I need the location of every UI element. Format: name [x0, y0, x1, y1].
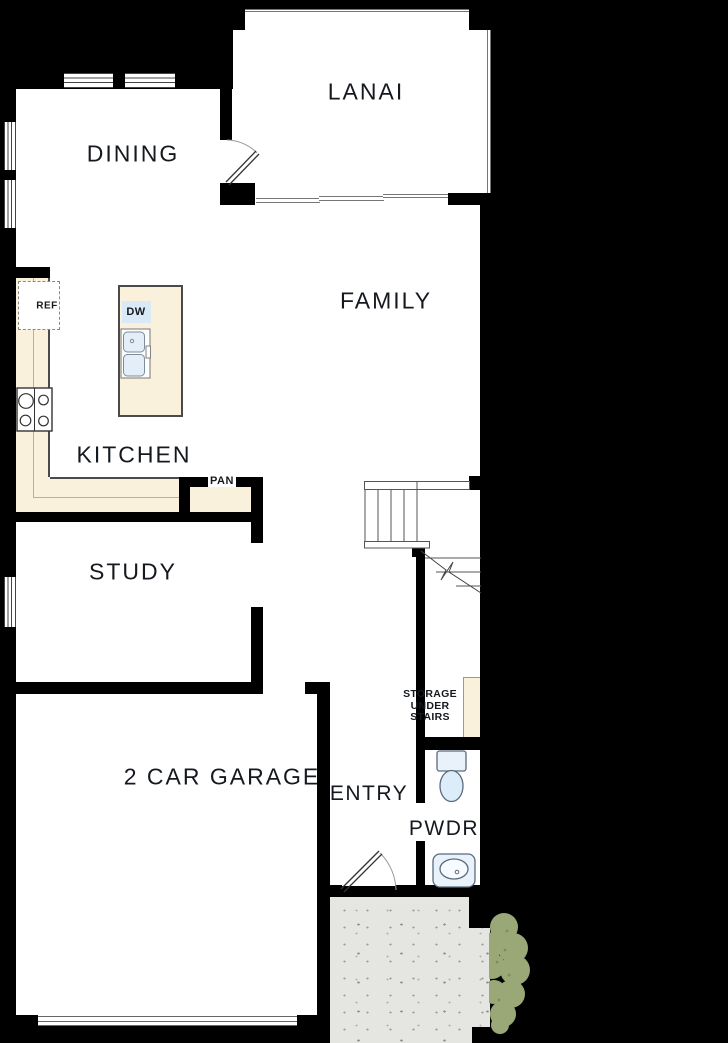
- counter-inner-line-h: [33, 497, 179, 498]
- garage-floor: [16, 694, 317, 1016]
- window-dining-top-2: [125, 73, 175, 88]
- floor-plan: LANAI DINING FAMILY KITCHEN STUDY 2 CAR …: [0, 0, 728, 1043]
- lanai-post-top-left: [220, 8, 245, 30]
- lanai-screen-right: [487, 30, 491, 193]
- wall-pantry-top-left: [190, 477, 208, 487]
- room-label-kitchen: KITCHEN: [77, 442, 192, 469]
- garage-door-panel-line: [38, 1021, 297, 1022]
- garage-door: [38, 1016, 297, 1026]
- window-dining-left-2: [4, 180, 16, 228]
- wall-study-bottom: [4, 682, 263, 694]
- storage-line-3: STAIRS: [403, 712, 457, 724]
- pantry-floor: [190, 487, 251, 512]
- window-dining-left-1: [4, 122, 16, 170]
- stair-newel-post: [412, 541, 425, 557]
- room-label-study: STUDY: [89, 559, 177, 586]
- sliding-door-panel-2: [319, 196, 384, 201]
- porch-concrete: [330, 897, 490, 1043]
- room-label-lanai: LANAI: [328, 79, 404, 106]
- sliding-door-panel-3: [383, 194, 448, 198]
- wall-garage-right: [317, 682, 330, 1016]
- wall-powder-left-lower: [416, 841, 425, 886]
- wall-dining-right: [220, 89, 232, 140]
- window-dining-top-1: [64, 73, 113, 88]
- porch-post-top: [469, 895, 492, 928]
- wall-powder-top: [416, 737, 482, 750]
- storage-line-1: STORAGE: [403, 689, 457, 701]
- room-label-entry: ENTRY: [330, 782, 408, 806]
- wall-kitchen-stub: [4, 267, 50, 278]
- label-storage-under-stairs: STORAGE UNDER STAIRS: [403, 689, 457, 724]
- lanai-post-bottom-right: [448, 193, 493, 205]
- room-label-garage: 2 CAR GARAGE: [124, 764, 321, 791]
- room-label-dining: DINING: [87, 141, 180, 168]
- wall-exterior-right: [480, 205, 493, 895]
- wall-pantry-top-right: [236, 477, 263, 487]
- wall-garage-bottom-right: [297, 1015, 330, 1028]
- wall-garage-bottom-left: [0, 1015, 38, 1028]
- porch-post-bottom: [472, 1027, 492, 1043]
- kitchen-counter-bottom: [50, 477, 179, 512]
- wall-dining-top: [4, 72, 232, 89]
- wall-stair-attach: [469, 476, 480, 490]
- room-label-family: FAMILY: [340, 288, 432, 315]
- lanai-post-top-right: [469, 8, 492, 30]
- lanai-post-bottom-left: [220, 183, 255, 205]
- wall-study-right-lower: [251, 607, 263, 682]
- wall-powder-left-upper: [416, 750, 425, 803]
- sliding-door-panel-1: [256, 198, 320, 203]
- storage-closet-shelf: [463, 677, 481, 741]
- main-floor: [16, 89, 481, 682]
- window-study-left: [4, 577, 16, 627]
- room-label-powder: PWDR: [409, 817, 479, 841]
- label-dishwasher: DW: [126, 306, 145, 318]
- label-pantry: PAN: [210, 475, 234, 487]
- wall-entry-bottom-left: [327, 885, 342, 897]
- label-refrigerator: REF: [36, 301, 58, 312]
- lanai-screen-top: [245, 9, 470, 12]
- wall-study-top: [4, 512, 263, 522]
